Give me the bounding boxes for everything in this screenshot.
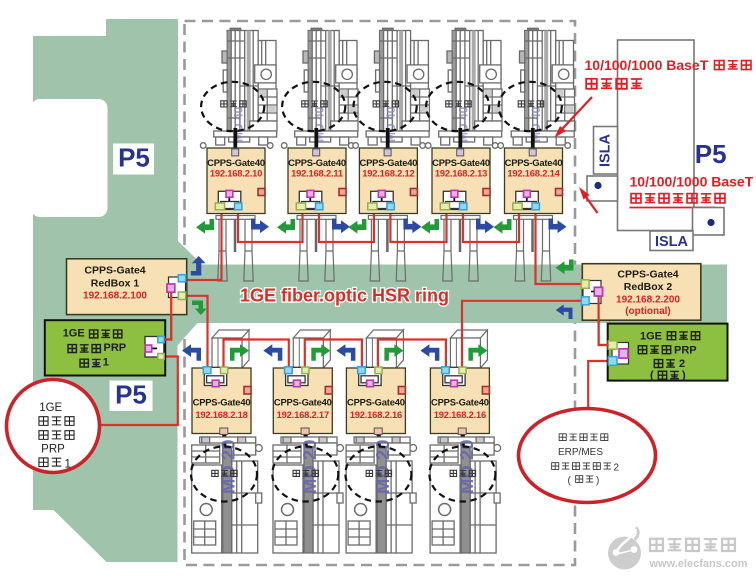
svg-text:192.168.2.100: 192.168.2.100	[83, 291, 147, 302]
svg-text:CPPS-Gate40: CPPS-Gate40	[431, 397, 489, 408]
svg-text:P5: P5	[115, 380, 147, 410]
svg-text:192.168.2.17: 192.168.2.17	[277, 409, 329, 420]
svg-text:P5: P5	[695, 139, 727, 169]
svg-text:192.168.2.10: 192.168.2.10	[210, 168, 262, 179]
svg-text:CPPS-Gate40: CPPS-Gate40	[193, 397, 251, 408]
svg-text:192.168.2.11: 192.168.2.11	[291, 168, 343, 179]
svg-text:PRP: PRP	[104, 342, 127, 354]
svg-text:RedBox 1: RedBox 1	[91, 278, 140, 290]
svg-text:192.168.2.16: 192.168.2.16	[350, 409, 402, 420]
svg-text:192.168.2.16: 192.168.2.16	[434, 409, 486, 420]
svg-text:192.168.2.13: 192.168.2.13	[435, 168, 487, 179]
svg-text:PRP: PRP	[41, 444, 65, 456]
svg-text:ISLA: ISLA	[655, 234, 689, 250]
svg-text:1GE: 1GE	[63, 328, 85, 340]
svg-text:CPPS-Gate40: CPPS-Gate40	[432, 157, 490, 168]
svg-text:10/100/1000 BaseT: 10/100/1000 BaseT	[630, 174, 754, 190]
svg-text:CPPS-Gate40: CPPS-Gate40	[274, 397, 332, 408]
svg-text:192.168.2.200: 192.168.2.200	[616, 295, 680, 306]
svg-text:): )	[682, 370, 686, 382]
svg-text:1GE fiber.optic HSR ring: 1GE fiber.optic HSR ring	[240, 286, 449, 306]
svg-text:ISLA: ISLA	[598, 133, 614, 167]
svg-text:www.elecfans.com: www.elecfans.com	[649, 558, 748, 570]
svg-text:192.168.2.18: 192.168.2.18	[195, 409, 247, 420]
svg-text:CPPS-Gate4: CPPS-Gate4	[617, 269, 678, 281]
svg-text:P5: P5	[118, 143, 150, 173]
svg-text:RedBox 2: RedBox 2	[624, 281, 673, 293]
svg-text:(: (	[650, 370, 654, 382]
svg-text:CPPS-Gate4: CPPS-Gate4	[84, 265, 145, 277]
svg-text:CPPS-Gate40: CPPS-Gate40	[360, 157, 418, 168]
svg-text:1: 1	[65, 458, 71, 470]
svg-text:CPPS-Gate40: CPPS-Gate40	[207, 157, 265, 168]
svg-text:2: 2	[679, 358, 685, 370]
svg-text:CPPS-Gate40: CPPS-Gate40	[288, 157, 346, 168]
svg-text:ERP/MES: ERP/MES	[558, 447, 603, 458]
svg-text:CPPS-Gate40: CPPS-Gate40	[347, 397, 405, 408]
svg-text:192.168.2.12: 192.168.2.12	[362, 168, 414, 179]
svg-text:): )	[596, 475, 599, 486]
svg-text:1GE: 1GE	[39, 402, 62, 414]
svg-text:10/100/1000 BaseT: 10/100/1000 BaseT	[585, 57, 709, 73]
svg-text:1GE: 1GE	[640, 331, 662, 343]
svg-text:CPPS-Gate40: CPPS-Gate40	[505, 157, 563, 168]
svg-text:PRP: PRP	[674, 345, 697, 357]
svg-text:(optional): (optional)	[625, 306, 671, 317]
svg-text:1: 1	[103, 357, 109, 369]
svg-text:2: 2	[614, 462, 620, 473]
svg-text:192.168.2.14: 192.168.2.14	[507, 168, 560, 179]
